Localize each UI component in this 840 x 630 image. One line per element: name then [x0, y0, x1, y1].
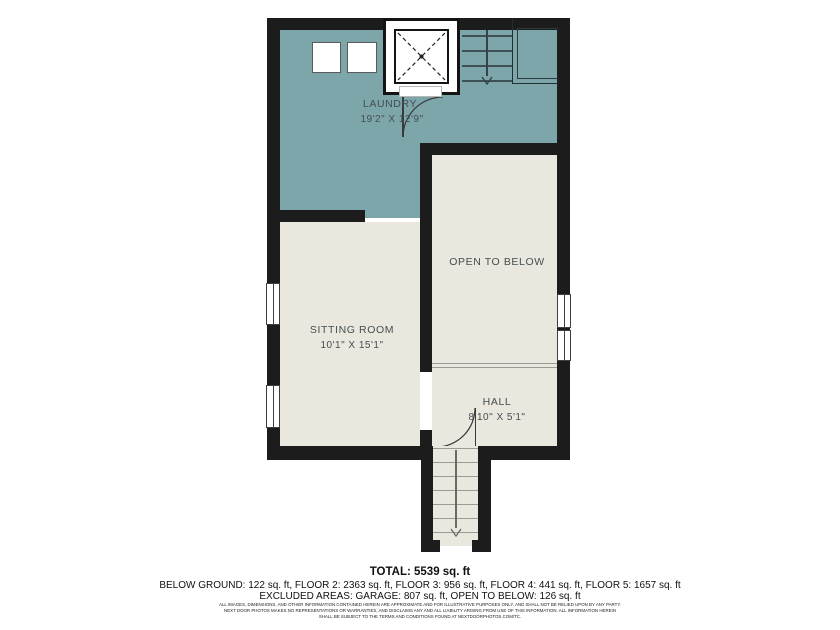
wall-mid-vertical-lower — [420, 430, 432, 446]
stair-tread — [462, 65, 513, 67]
wall-open-to-below-north — [420, 143, 570, 155]
excluded-areas-text: EXCLUDED AREAS: GARAGE: 807 sq. ft, OPEN… — [0, 591, 840, 602]
lower-stairs-cap-left — [421, 540, 440, 552]
lower-stairs-cap-right — [472, 540, 491, 552]
laundry-dims: 19'2" X 12'9" — [360, 114, 423, 125]
sitting-room-label: SITTING ROOM — [310, 324, 394, 336]
stair-landing-closet-inner — [517, 28, 558, 79]
wall-right — [557, 18, 570, 460]
window-pane — [564, 331, 565, 360]
stair-tread — [433, 448, 478, 449]
open-to-below-label: OPEN TO BELOW — [449, 256, 545, 268]
window-pane — [273, 284, 274, 324]
lower-stairs-wall-right — [478, 446, 491, 552]
laundry-floor-lower — [280, 143, 420, 218]
hall-dims: 8'10" X 5'1" — [469, 412, 526, 423]
window — [557, 330, 571, 361]
disclaimer-line: SHALL BE SUBJECT TO THE TERMS AND CONDIT… — [189, 614, 651, 619]
window — [557, 294, 571, 328]
total-area-text: TOTAL: 5539 sq. ft — [0, 566, 840, 578]
floor-areas-text: BELOW GROUND: 122 sq. ft, FLOOR 2: 2363 … — [0, 580, 840, 591]
disclaimer-line: NEXT DOOR PHOTOS MAKES NO REPRESENTATION… — [189, 608, 651, 613]
window — [266, 385, 280, 428]
hall-separation-line — [432, 363, 557, 364]
wall-laundry-south — [267, 210, 365, 222]
stair-rail — [486, 30, 488, 76]
appliance-dryer — [347, 42, 377, 73]
window-pane — [273, 386, 274, 427]
stairs-down-arrow-icon — [481, 76, 493, 85]
wall-bottom-right — [478, 446, 570, 460]
stair-rail — [455, 450, 457, 528]
stair-tread — [462, 50, 513, 52]
wall-bottom-left — [267, 446, 429, 460]
laundry-label: LAUNDRY — [363, 98, 417, 110]
lower-stairs-wall-left — [421, 446, 433, 552]
elevator-shaft-icon — [394, 29, 449, 84]
stair-tread — [462, 35, 513, 37]
elevator-door-opening — [399, 86, 442, 97]
hall-label: HALL — [483, 396, 512, 408]
window-pane — [564, 295, 565, 327]
sitting-hall-doorway — [420, 372, 432, 430]
disclaimer-line: ALL IMAGES, DIMENSIONS, AND OTHER INFORM… — [189, 602, 651, 607]
window — [266, 283, 280, 325]
sitting-room-dims: 10'1" X 15'1" — [320, 340, 383, 351]
laundry-opening — [365, 218, 417, 222]
appliance-washer — [312, 42, 341, 73]
floor-plan: LAUNDRY 19'2" X 12'9" OPEN TO BELOW SITT… — [0, 0, 840, 630]
stairs-down-arrow-icon — [450, 528, 462, 537]
hall-separation-line — [432, 367, 557, 368]
wall-mid-vertical — [420, 143, 432, 372]
